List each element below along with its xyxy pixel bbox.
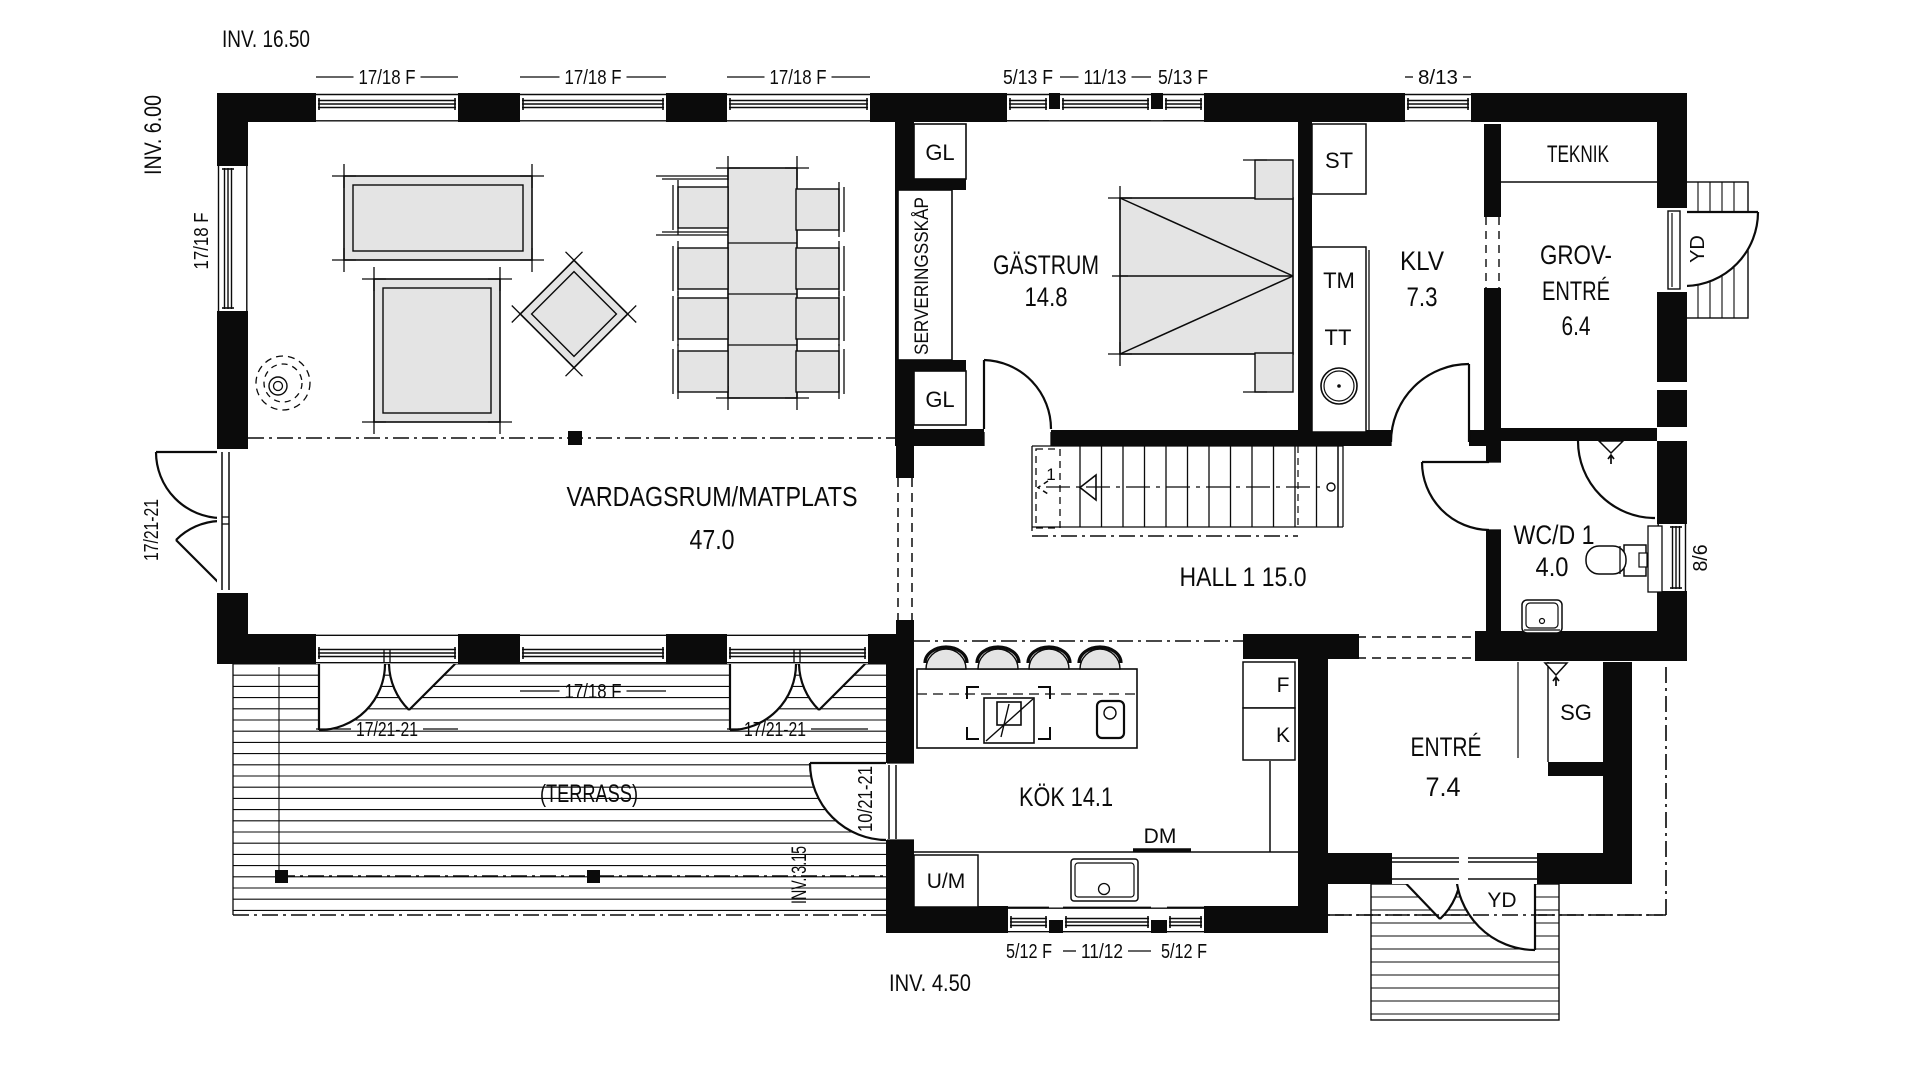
svg-text:INV. 6.00: INV. 6.00 <box>140 95 167 175</box>
svg-text:GL: GL <box>925 387 954 412</box>
svg-text:K: K <box>1276 724 1290 747</box>
svg-text:ENTRÉ: ENTRÉ <box>1411 732 1482 762</box>
svg-text:ST: ST <box>1325 148 1353 173</box>
svg-text:17/18 F: 17/18 F <box>565 681 622 703</box>
svg-text:WC/D 1: WC/D 1 <box>1514 520 1595 550</box>
svg-text:INV. 3.15: INV. 3.15 <box>788 846 811 904</box>
svg-text:SG: SG <box>1560 700 1592 725</box>
svg-text:17/18 F: 17/18 F <box>565 67 622 89</box>
svg-text:11/12: 11/12 <box>1081 941 1123 963</box>
svg-text:17/18 F: 17/18 F <box>770 67 827 89</box>
svg-text:47.0: 47.0 <box>690 524 735 555</box>
svg-text:6.4: 6.4 <box>1562 311 1591 341</box>
svg-text:INV. 16.50: INV. 16.50 <box>222 26 310 53</box>
svg-text:YD: YD <box>1487 889 1516 912</box>
svg-text:5/13 F: 5/13 F <box>1003 67 1053 89</box>
svg-text:GL: GL <box>925 140 954 165</box>
svg-text:SERVERINGSSKÅP: SERVERINGSSKÅP <box>912 197 933 355</box>
svg-text:KÖK 14.1: KÖK 14.1 <box>1019 782 1113 812</box>
svg-text:U/M: U/M <box>927 870 966 893</box>
svg-text:ENTRÉ: ENTRÉ <box>1542 276 1610 306</box>
svg-text:GÄSTRUM: GÄSTRUM <box>993 250 1099 280</box>
svg-text:(TERRASS): (TERRASS) <box>540 780 638 808</box>
svg-text:17/21-21: 17/21-21 <box>356 719 418 741</box>
svg-text:14.8: 14.8 <box>1025 282 1068 312</box>
svg-text:5/12 F: 5/12 F <box>1161 941 1207 963</box>
svg-text:TM: TM <box>1323 268 1355 293</box>
svg-text:HALL 1 15.0: HALL 1 15.0 <box>1180 562 1307 592</box>
svg-text:GROV-: GROV- <box>1540 240 1612 270</box>
svg-text:7.4: 7.4 <box>1426 772 1461 802</box>
svg-text:17/18 F: 17/18 F <box>191 213 213 270</box>
svg-text:TT: TT <box>1325 325 1352 350</box>
svg-text:4.0: 4.0 <box>1536 552 1569 582</box>
svg-text:11/13: 11/13 <box>1084 67 1127 89</box>
svg-text:INV. 4.50: INV. 4.50 <box>889 970 971 997</box>
svg-text:KLV: KLV <box>1400 246 1444 276</box>
svg-text:17/21-21: 17/21-21 <box>744 719 806 741</box>
svg-text:F: F <box>1277 674 1290 697</box>
svg-text:7.3: 7.3 <box>1407 282 1438 312</box>
svg-text:5/13 F: 5/13 F <box>1158 67 1208 89</box>
svg-text:10/21-21: 10/21-21 <box>855 766 877 832</box>
svg-text:17/18 F: 17/18 F <box>359 67 416 89</box>
svg-text:YD: YD <box>1687 235 1709 263</box>
svg-text:VARDAGSRUM/MATPLATS: VARDAGSRUM/MATPLATS <box>567 481 858 512</box>
svg-text:DM: DM <box>1144 825 1177 848</box>
svg-text:TEKNIK: TEKNIK <box>1547 141 1609 168</box>
svg-text:17/21-21: 17/21-21 <box>141 499 163 561</box>
svg-text:5/12 F: 5/12 F <box>1006 941 1052 963</box>
svg-text:1: 1 <box>1046 465 1055 484</box>
svg-text:8/13: 8/13 <box>1418 67 1458 89</box>
svg-text:8/6: 8/6 <box>1690 545 1712 572</box>
